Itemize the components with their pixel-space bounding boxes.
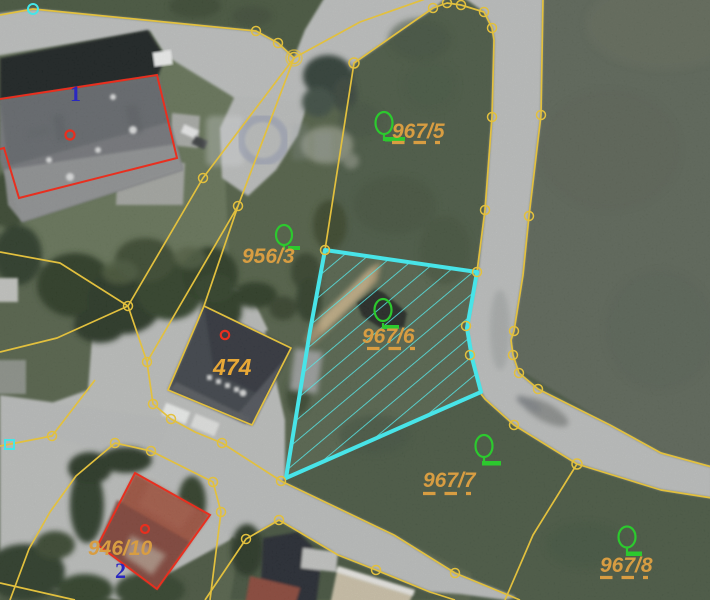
svg-text:946/10: 946/10 [88,537,153,560]
svg-text:1: 1 [70,81,81,106]
svg-text:2: 2 [115,558,126,583]
svg-text:967/5: 967/5 [392,120,445,143]
svg-text:967/7: 967/7 [423,469,477,492]
svg-text:474: 474 [212,354,252,380]
svg-text:967/6: 967/6 [362,325,415,348]
svg-text:967/8: 967/8 [600,554,653,577]
svg-text:956/3: 956/3 [242,245,295,268]
